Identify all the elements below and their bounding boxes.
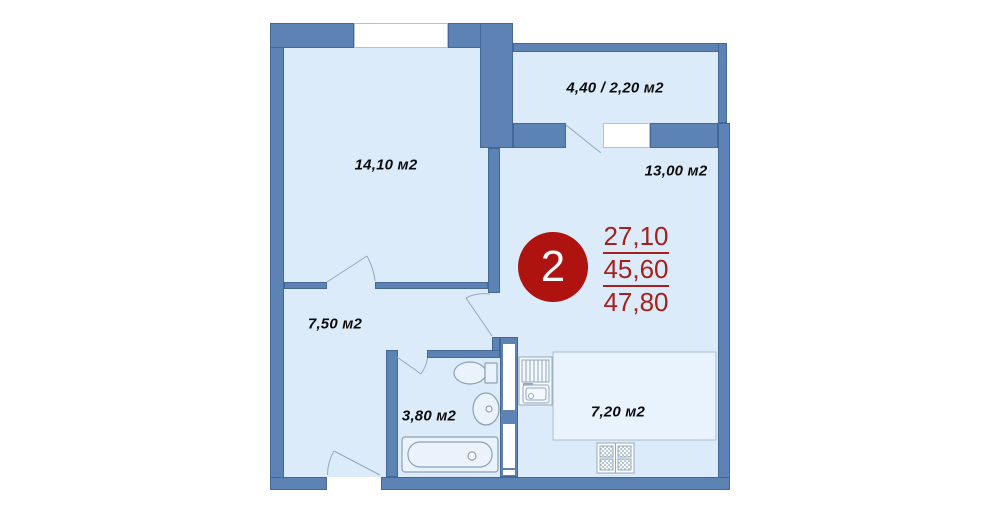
unit-number: 2 (541, 245, 565, 289)
plan-symbols (0, 0, 1000, 511)
stove-symbol (597, 443, 634, 473)
kitchen-counter-sink (519, 357, 552, 405)
area-summary: 27,10 45,60 47,80 (592, 221, 680, 318)
room-label-bathroom: 3,80 м2 (402, 408, 456, 425)
room-label-kitchen: 7,20 м2 (591, 404, 645, 421)
door-bedroom (327, 256, 375, 282)
area-overall: 47,80 (603, 287, 668, 318)
door-living (466, 294, 492, 336)
room-label-bedroom: 14,10 м2 (355, 157, 418, 174)
room-label-living: 13,00 м2 (645, 163, 708, 180)
room-label-hallway: 7,50 м2 (308, 316, 362, 333)
unit-number-badge: 2 (518, 232, 588, 302)
door-balcony (566, 125, 601, 153)
toilet-symbol (454, 362, 497, 384)
washbasin-symbol (473, 393, 499, 425)
door-bathroom (397, 357, 428, 374)
area-living: 27,10 (603, 221, 668, 254)
area-total: 45,60 (603, 254, 668, 287)
floor-plan: 14,10 м2 4,40 / 2,20 м2 13,00 м2 7,50 м2… (0, 0, 1000, 511)
bathtub-symbol (402, 437, 498, 472)
kitchen-work-zone (553, 352, 716, 440)
door-entry (328, 451, 381, 475)
room-label-balcony: 4,40 / 2,20 м2 (566, 80, 663, 97)
